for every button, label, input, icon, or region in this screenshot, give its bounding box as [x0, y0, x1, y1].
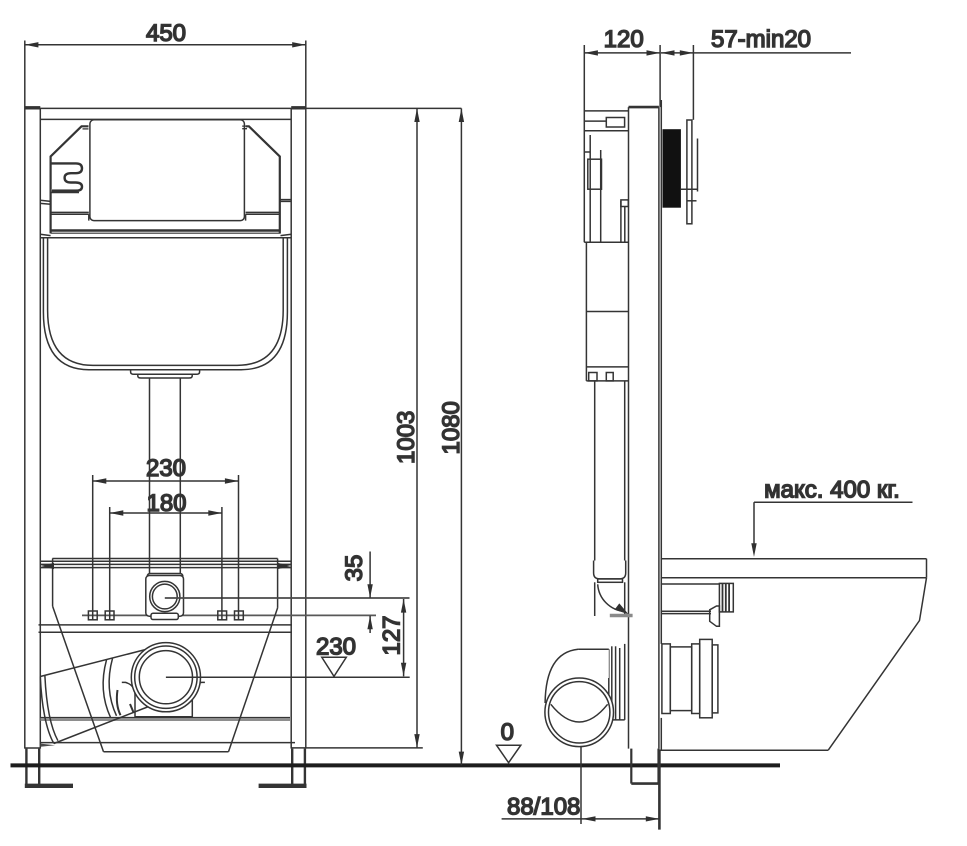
svg-text:120: 120	[604, 26, 644, 53]
svg-text:57-min20: 57-min20	[711, 26, 811, 53]
svg-text:макс. 400 кг.: макс. 400 кг.	[764, 477, 900, 504]
svg-text:127: 127	[379, 615, 406, 655]
svg-text:0: 0	[501, 719, 514, 746]
svg-text:35: 35	[341, 555, 368, 582]
svg-text:1003: 1003	[393, 411, 420, 464]
svg-text:230: 230	[316, 634, 356, 661]
svg-text:1080: 1080	[438, 401, 465, 454]
svg-text:88/108: 88/108	[507, 794, 580, 821]
svg-text:230: 230	[146, 455, 186, 482]
svg-text:450: 450	[146, 20, 186, 47]
svg-text:180: 180	[146, 490, 186, 517]
